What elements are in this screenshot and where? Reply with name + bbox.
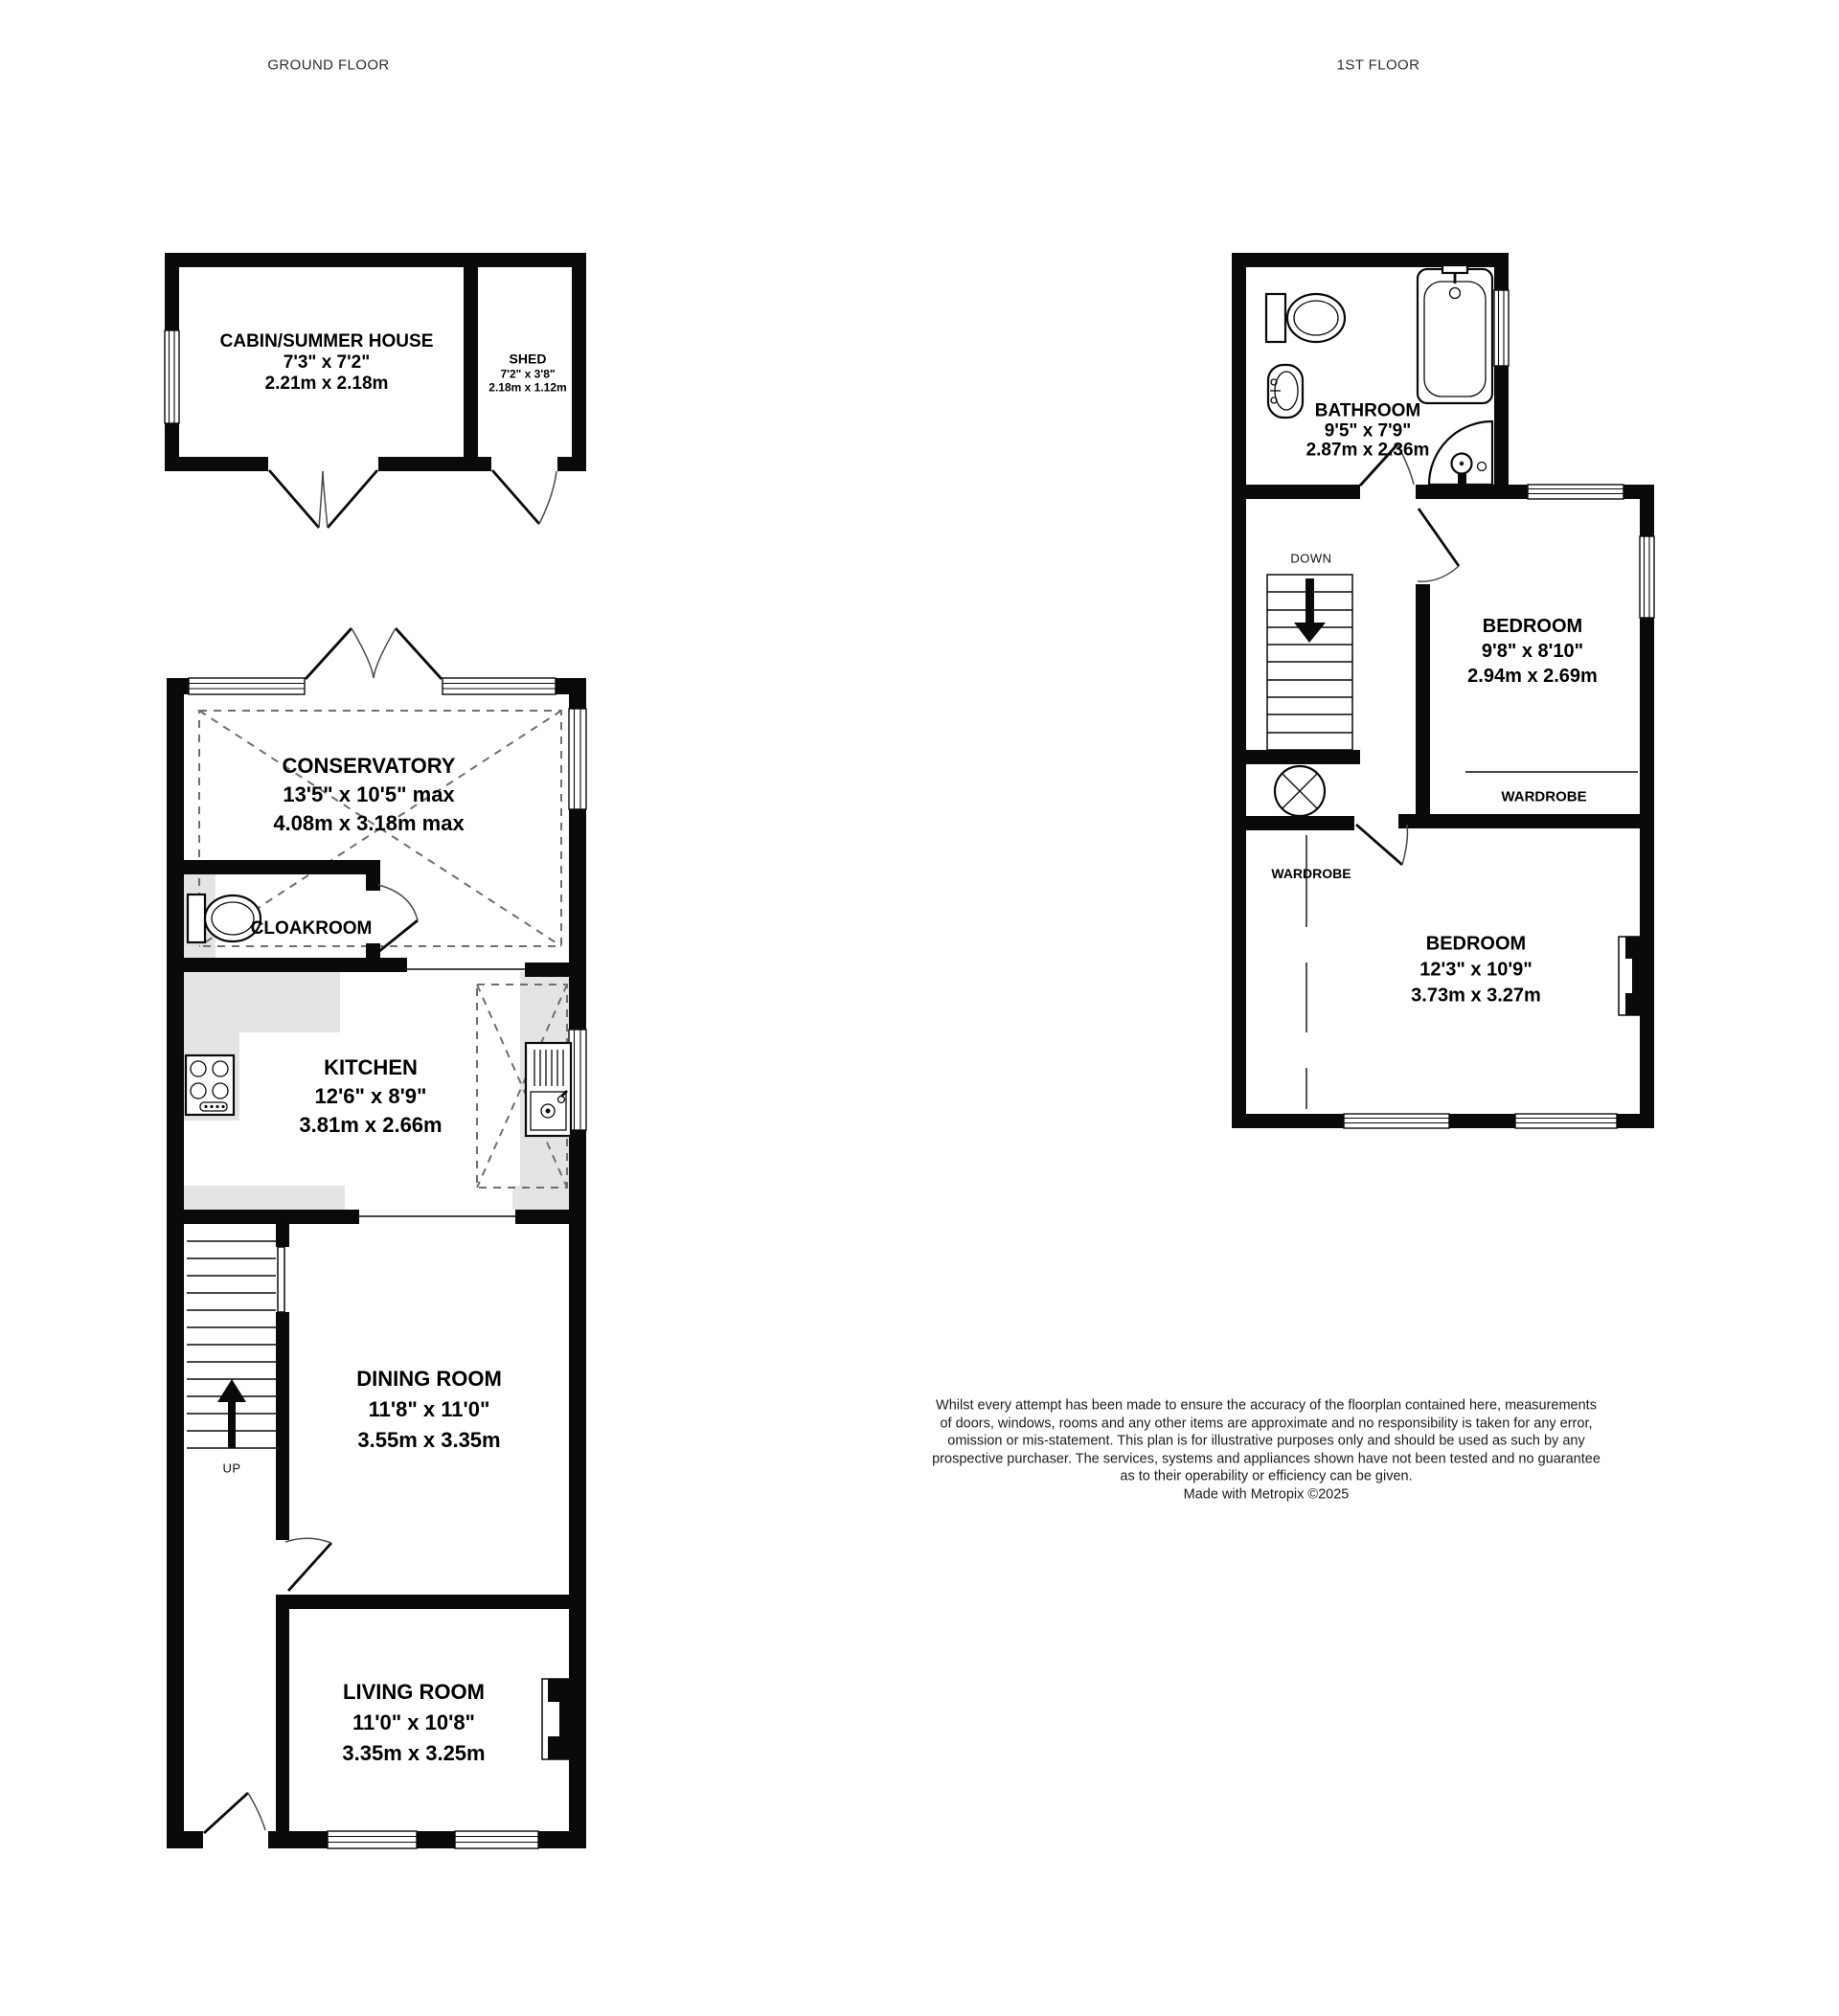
bedroom-1-wardrobe-label: WARDROBE [1501,789,1586,805]
room-label-bedroom-2: BEDROOM 12'3" x 10'9" 3.73m x 3.27m [1411,932,1541,1009]
room-label-living-room: LIVING ROOM 11'0" x 10'8" 3.35m x 3.25m [342,1677,485,1769]
bathroom-window [1494,290,1509,366]
staircase-down [1267,575,1352,750]
stairs-up-label: UP [222,1461,240,1476]
bedroom2-door [1356,825,1407,865]
disclaimer-text: Whilst every attempt has been made to en… [874,1397,1659,1504]
toilet-icon [1266,294,1345,342]
cabin-window [165,330,179,423]
bedroom1-door [1418,509,1459,581]
stairs-down-label: DOWN [1290,552,1331,566]
ground-floor-title: GROUND FLOOR [267,57,389,74]
front-door [204,1793,265,1833]
toilet-icon [188,895,261,942]
bathtub-icon [1418,265,1492,403]
room-label-cloakroom: CLOAKROOM [251,918,373,940]
staircase-up [187,1241,276,1448]
circle-cross-icon [1275,766,1325,816]
room-label-shed: SHED 7'2" x 3'8" 2.18m x 1.12m [488,351,566,395]
living-room-fireplace [542,1679,569,1759]
conservatory-double-door [306,628,442,679]
bedroom2-fireplace [1619,937,1640,1015]
shed-door [492,470,556,524]
room-label-bedroom-1: BEDROOM 9'8" x 8'10" 2.94m x 2.69m [1467,614,1598,689]
room-label-cabin: CABIN/SUMMER HOUSE 7'3" x 7'2" 2.21m x 2… [220,331,434,395]
dining-living-door [285,1538,331,1591]
bedroom1-windows [1528,485,1654,618]
hob-icon [186,1055,234,1115]
floorplan-drawing [0,0,1839,2016]
kitchen-sink-icon [526,1043,571,1136]
ground-floor-plan [165,253,586,1848]
house-walls [167,678,586,1848]
corner-shower-icon [1429,421,1492,486]
bedroom-2-wardrobe-label: WARDROBE [1271,866,1351,881]
room-label-dining-room: DINING ROOM 11'8" x 11'0" 3.55m x 3.35m [356,1364,502,1456]
cabin-double-door [269,470,377,528]
first-floor-title: 1ST FLOOR [1337,57,1420,74]
room-label-conservatory: CONSERVATORY 13'5" x 10'5" max 4.08m x 3… [273,752,464,838]
sink-icon [1268,365,1303,418]
floorplan-page: GROUND FLOOR 1ST FLOOR CABIN/SUMMER HOUS… [0,0,1839,2016]
room-label-kitchen: KITCHEN 12'6" x 8'9" 3.81m x 2.66m [299,1053,442,1140]
room-label-bathroom: BATHROOM 9'5" x 7'9" 2.87m x 2.36m [1306,401,1430,461]
